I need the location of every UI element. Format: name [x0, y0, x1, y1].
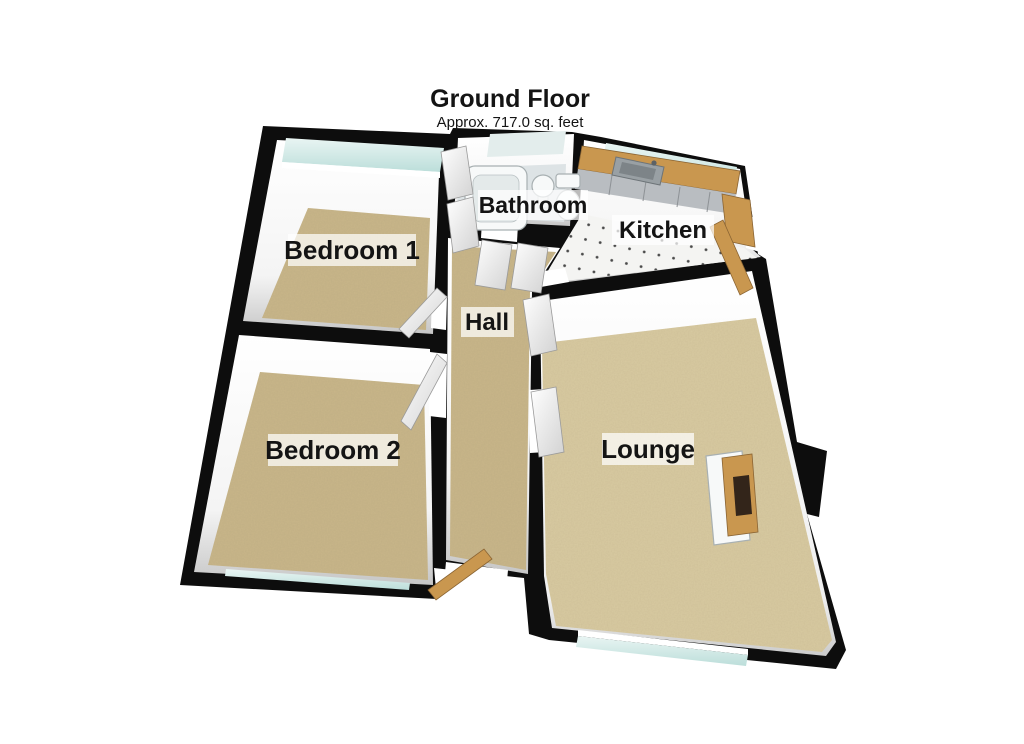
- svg-text:Bathroom: Bathroom: [479, 192, 588, 218]
- bathroom-door-leaf: [475, 240, 512, 290]
- kitchen-label: Kitchen: [612, 215, 714, 245]
- floorplan-subtitle: Approx. 717.0 sq. feet: [437, 114, 585, 131]
- floorplan-page: Bedroom 1 Bathroom Kitchen Hall Bedroom …: [0, 0, 1024, 744]
- svg-text:Bedroom 2: Bedroom 2: [265, 435, 401, 465]
- fireplace: [706, 451, 758, 545]
- svg-text:Bedroom 1: Bedroom 1: [284, 235, 420, 265]
- lounge-floor: [542, 318, 832, 652]
- lounge-label: Lounge: [601, 433, 695, 465]
- bedroom2-label: Bedroom 2: [265, 434, 401, 466]
- floorplan-canvas: Bedroom 1 Bathroom Kitchen Hall Bedroom …: [0, 0, 1024, 744]
- floorplan-title: Ground Floor: [430, 85, 590, 113]
- cupboard-door-leaf-2: [447, 197, 479, 253]
- svg-text:Lounge: Lounge: [601, 434, 695, 464]
- bathroom-window: [487, 131, 566, 157]
- hall-cupboard-door-leaf: [511, 243, 548, 293]
- bathroom-label: Bathroom: [478, 190, 588, 220]
- svg-text:Hall: Hall: [465, 309, 509, 336]
- hall-label: Hall: [461, 307, 514, 337]
- bedroom1-label: Bedroom 1: [284, 234, 420, 266]
- svg-text:Kitchen: Kitchen: [619, 217, 707, 244]
